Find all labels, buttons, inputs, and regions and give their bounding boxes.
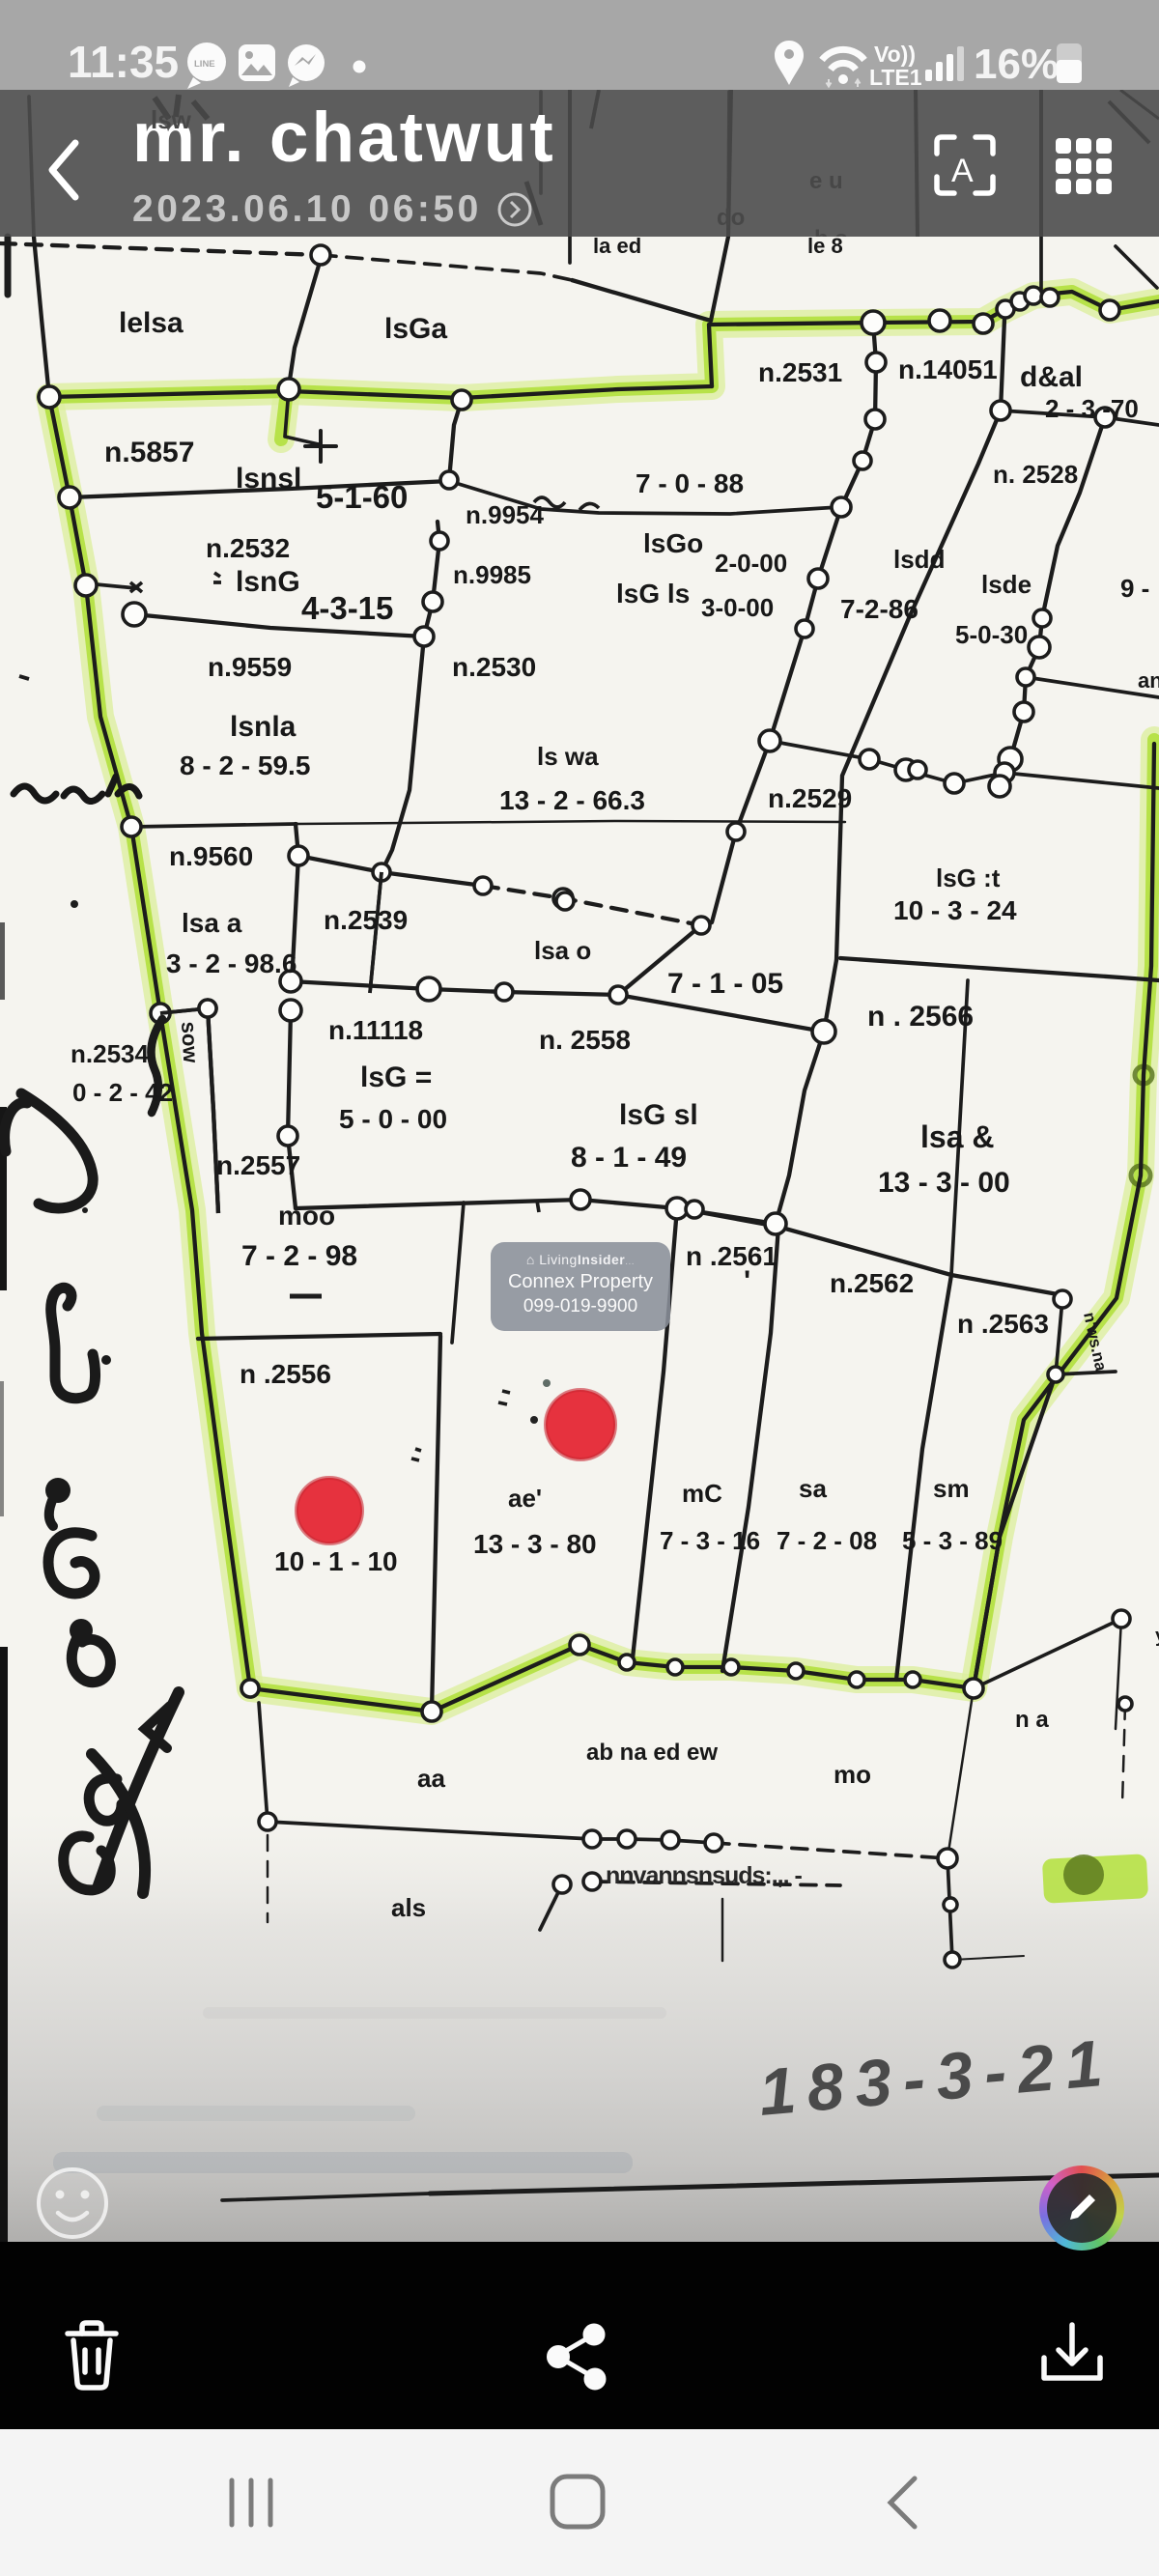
svg-text:7 - 3 - 16: 7 - 3 - 16: [660, 1526, 760, 1555]
svg-text:13 - 3 - 80: 13 - 3 - 80: [473, 1529, 597, 1559]
svg-text:Vo)): Vo)): [874, 42, 916, 67]
svg-text:7 - 2 - 98: 7 - 2 - 98: [241, 1240, 357, 1272]
svg-text:10 - 3 - 24: 10 - 3 - 24: [893, 895, 1017, 925]
svg-text:5 - 0 - 00: 5 - 0 - 00: [339, 1104, 447, 1134]
svg-text:5-0-30: 5-0-30: [955, 620, 1028, 649]
svg-text:n.2529: n.2529: [768, 783, 852, 813]
svg-text:LTE1: LTE1: [869, 65, 922, 90]
svg-text:n.2539: n.2539: [324, 905, 408, 935]
svg-text:an: an: [1138, 668, 1159, 693]
svg-text:lsGa: lsGa: [384, 313, 447, 345]
svg-text:ae': ae': [508, 1484, 542, 1513]
svg-text:3 - 2 - 98.6: 3 - 2 - 98.6: [166, 948, 297, 978]
svg-text:n .2563: n .2563: [957, 1309, 1049, 1339]
svg-text:9 -: 9 -: [1120, 574, 1149, 603]
svg-text:lsG :t: lsG :t: [936, 863, 1001, 892]
svg-text:n .2561: n .2561: [686, 1241, 777, 1271]
svg-text:8 - 1 - 49: 8 - 1 - 49: [571, 1142, 687, 1174]
svg-text:n.2532: n.2532: [206, 533, 290, 563]
svg-text:2 - 3 -70: 2 - 3 -70: [1045, 394, 1139, 423]
svg-text:lsa o: lsa o: [534, 936, 591, 965]
svg-text:e u: e u: [809, 168, 843, 194]
svg-text:13 - 2 - 66.3: 13 - 2 - 66.3: [499, 785, 645, 815]
svg-text:nnvannsnsuds:.,. -: nnvannsnsuds:.,. -: [606, 1862, 803, 1889]
svg-text:lsdd: lsdd: [893, 545, 945, 574]
svg-text:7 - 0 - 88: 7 - 0 - 88: [636, 468, 744, 498]
svg-text:y: y: [1155, 1626, 1159, 1647]
svg-text:lsGo: lsGo: [643, 528, 703, 558]
svg-text:7-2-86: 7-2-86: [840, 594, 919, 624]
svg-text:lsde: lsde: [981, 570, 1032, 599]
svg-text:sa: sa: [799, 1474, 827, 1503]
svg-text:n.14051: n.14051: [898, 354, 998, 384]
svg-text:': ': [744, 1265, 750, 1297]
svg-text:lsa a: lsa a: [182, 908, 242, 938]
svg-text:n.2557: n.2557: [216, 1150, 300, 1180]
svg-text:13 - 3 - 00: 13 - 3 - 00: [878, 1167, 1010, 1199]
svg-text:b s: b s: [814, 226, 848, 237]
svg-text:sow: sow: [177, 1021, 203, 1064]
svg-text:8 - 2 - 59.5: 8 - 2 - 59.5: [180, 750, 310, 780]
svg-text:5-1-60: 5-1-60: [316, 479, 408, 515]
svg-text:n .2556: n .2556: [240, 1359, 331, 1389]
svg-text:7 - 1 - 05: 7 - 1 - 05: [667, 968, 783, 1000]
svg-text:lsnla: lsnla: [230, 711, 297, 743]
svg-text:n. 2558: n. 2558: [539, 1025, 631, 1055]
svg-text:le 8: le 8: [807, 234, 843, 258]
svg-text:n. 2528: n. 2528: [993, 460, 1078, 489]
svg-text:lelsa: lelsa: [119, 307, 184, 339]
svg-text:moo: moo: [278, 1201, 335, 1231]
svg-text:16%: 16%: [974, 41, 1059, 88]
svg-text:LINE: LINE: [194, 59, 215, 70]
svg-text:do: do: [717, 205, 745, 231]
svg-text:n.11118: n.11118: [328, 1015, 423, 1045]
svg-text:n.9985: n.9985: [453, 560, 531, 589]
svg-text:7 - 2 - 08: 7 - 2 - 08: [777, 1526, 877, 1555]
svg-text:3-0-00: 3-0-00: [701, 593, 774, 622]
svg-text:lsG sl: lsG sl: [619, 1099, 698, 1131]
svg-text:n.9560: n.9560: [169, 841, 253, 871]
svg-text:A: A: [951, 153, 974, 189]
svg-text:n.9559: n.9559: [208, 652, 292, 682]
svg-text:lsnG: lsnG: [236, 566, 300, 598]
svg-text:5 - 3 - 89: 5 - 3 - 89: [902, 1526, 1003, 1555]
svg-text:n a: n a: [1015, 1707, 1049, 1733]
svg-text:ab na ed ew: ab na ed ew: [586, 1740, 718, 1766]
svg-text:mC: mC: [682, 1479, 722, 1508]
svg-text:aa: aa: [417, 1764, 445, 1793]
svg-text:d&al: d&al: [1020, 361, 1083, 393]
svg-text:lsG =: lsG =: [360, 1062, 432, 1093]
svg-text:n . 2566: n . 2566: [867, 1001, 974, 1033]
svg-text:lsw: lsw: [151, 105, 192, 134]
svg-text:lsG ls: lsG ls: [616, 579, 690, 609]
svg-text:sm: sm: [933, 1474, 970, 1503]
svg-text:als: als: [391, 1893, 426, 1922]
svg-text:10 - 1 - 10: 10 - 1 - 10: [274, 1546, 398, 1576]
svg-text:11:35: 11:35: [68, 37, 179, 87]
svg-text:n.2562: n.2562: [830, 1268, 914, 1298]
svg-text:n.5857: n.5857: [104, 437, 194, 468]
svg-text:lsnsl: lsnsl: [236, 463, 301, 495]
svg-text:n.2534: n.2534: [71, 1039, 149, 1068]
svg-text:lsa &: lsa &: [920, 1119, 994, 1154]
svg-text:2-0-00: 2-0-00: [715, 549, 787, 578]
svg-text:ls wa: ls wa: [537, 742, 599, 771]
svg-text:0 - 2 - 42: 0 - 2 - 42: [72, 1078, 173, 1107]
svg-text:n.2531: n.2531: [758, 357, 842, 387]
svg-text:mo: mo: [834, 1760, 871, 1789]
svg-text:4-3-15: 4-3-15: [301, 590, 393, 626]
svg-text:n.9954: n.9954: [466, 500, 544, 529]
svg-text:n.2530: n.2530: [452, 652, 536, 682]
svg-text:la ed: la ed: [593, 234, 641, 258]
